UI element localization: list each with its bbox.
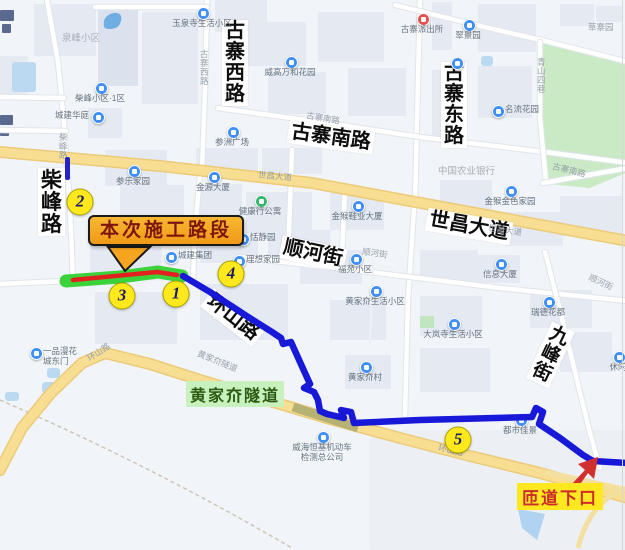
map-canvas[interactable]: 古寨西路古寨东路柴峰路古寨南路世昌大道顺河街环山路九峰街柴峰路古寨西路世昌大道世… bbox=[0, 0, 625, 550]
route-path bbox=[183, 276, 625, 463]
ramp-arrow-icon bbox=[570, 457, 598, 490]
route-overlay bbox=[0, 0, 625, 550]
